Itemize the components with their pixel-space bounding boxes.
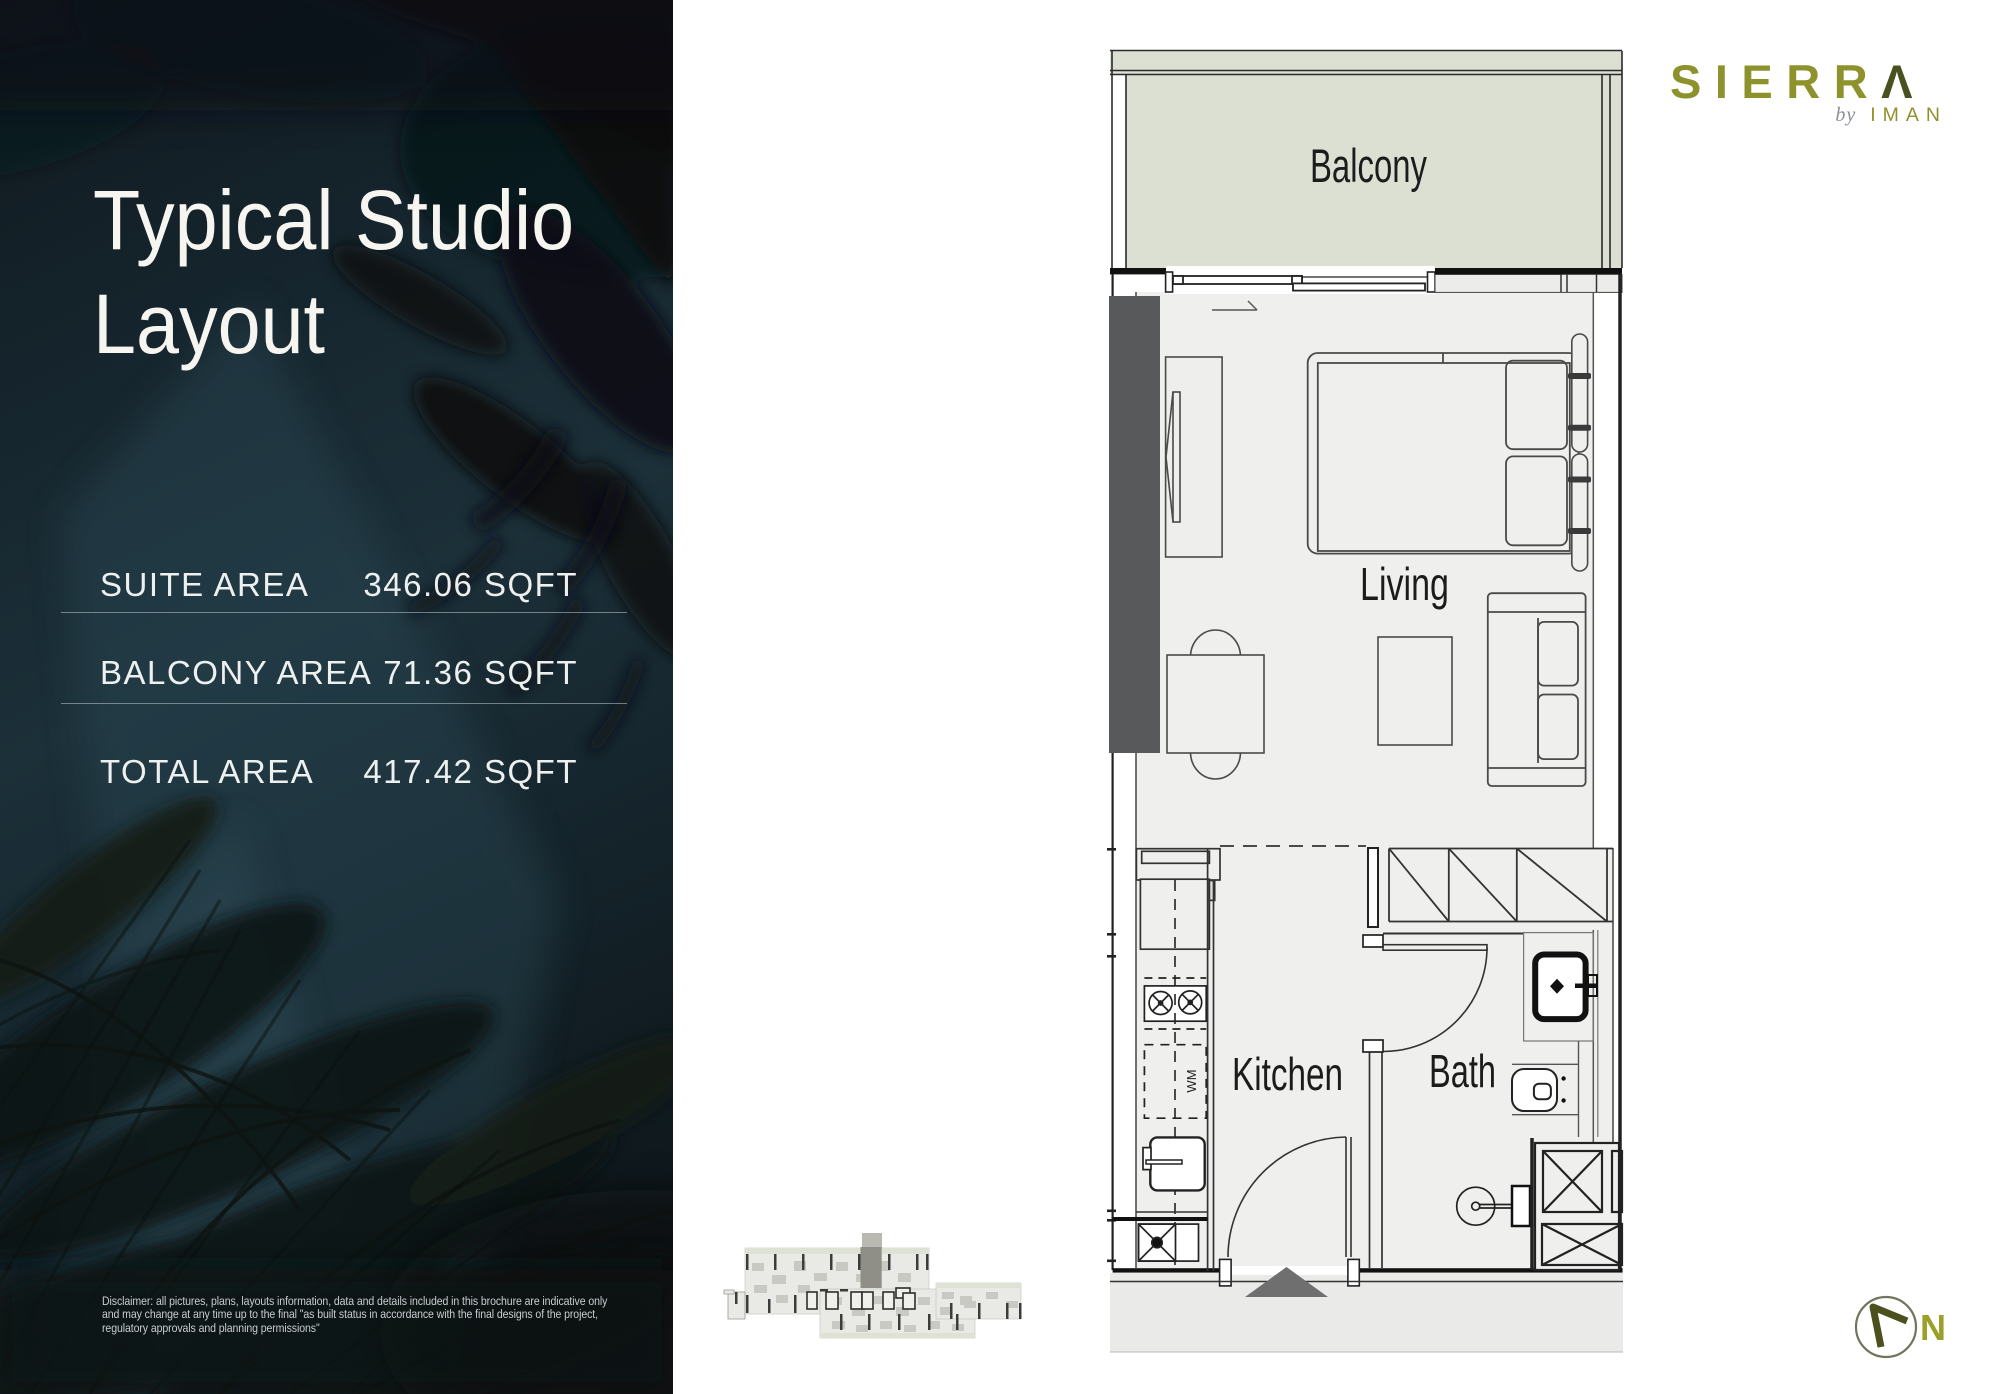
svg-text:WM: WM bbox=[1184, 1069, 1199, 1092]
svg-text:N: N bbox=[1920, 1307, 1946, 1348]
svg-text:Balcony: Balcony bbox=[1310, 139, 1427, 192]
svg-text:Kitchen: Kitchen bbox=[1232, 1048, 1343, 1100]
svg-text:Living: Living bbox=[1360, 558, 1449, 610]
svg-text:Bath: Bath bbox=[1429, 1045, 1496, 1097]
